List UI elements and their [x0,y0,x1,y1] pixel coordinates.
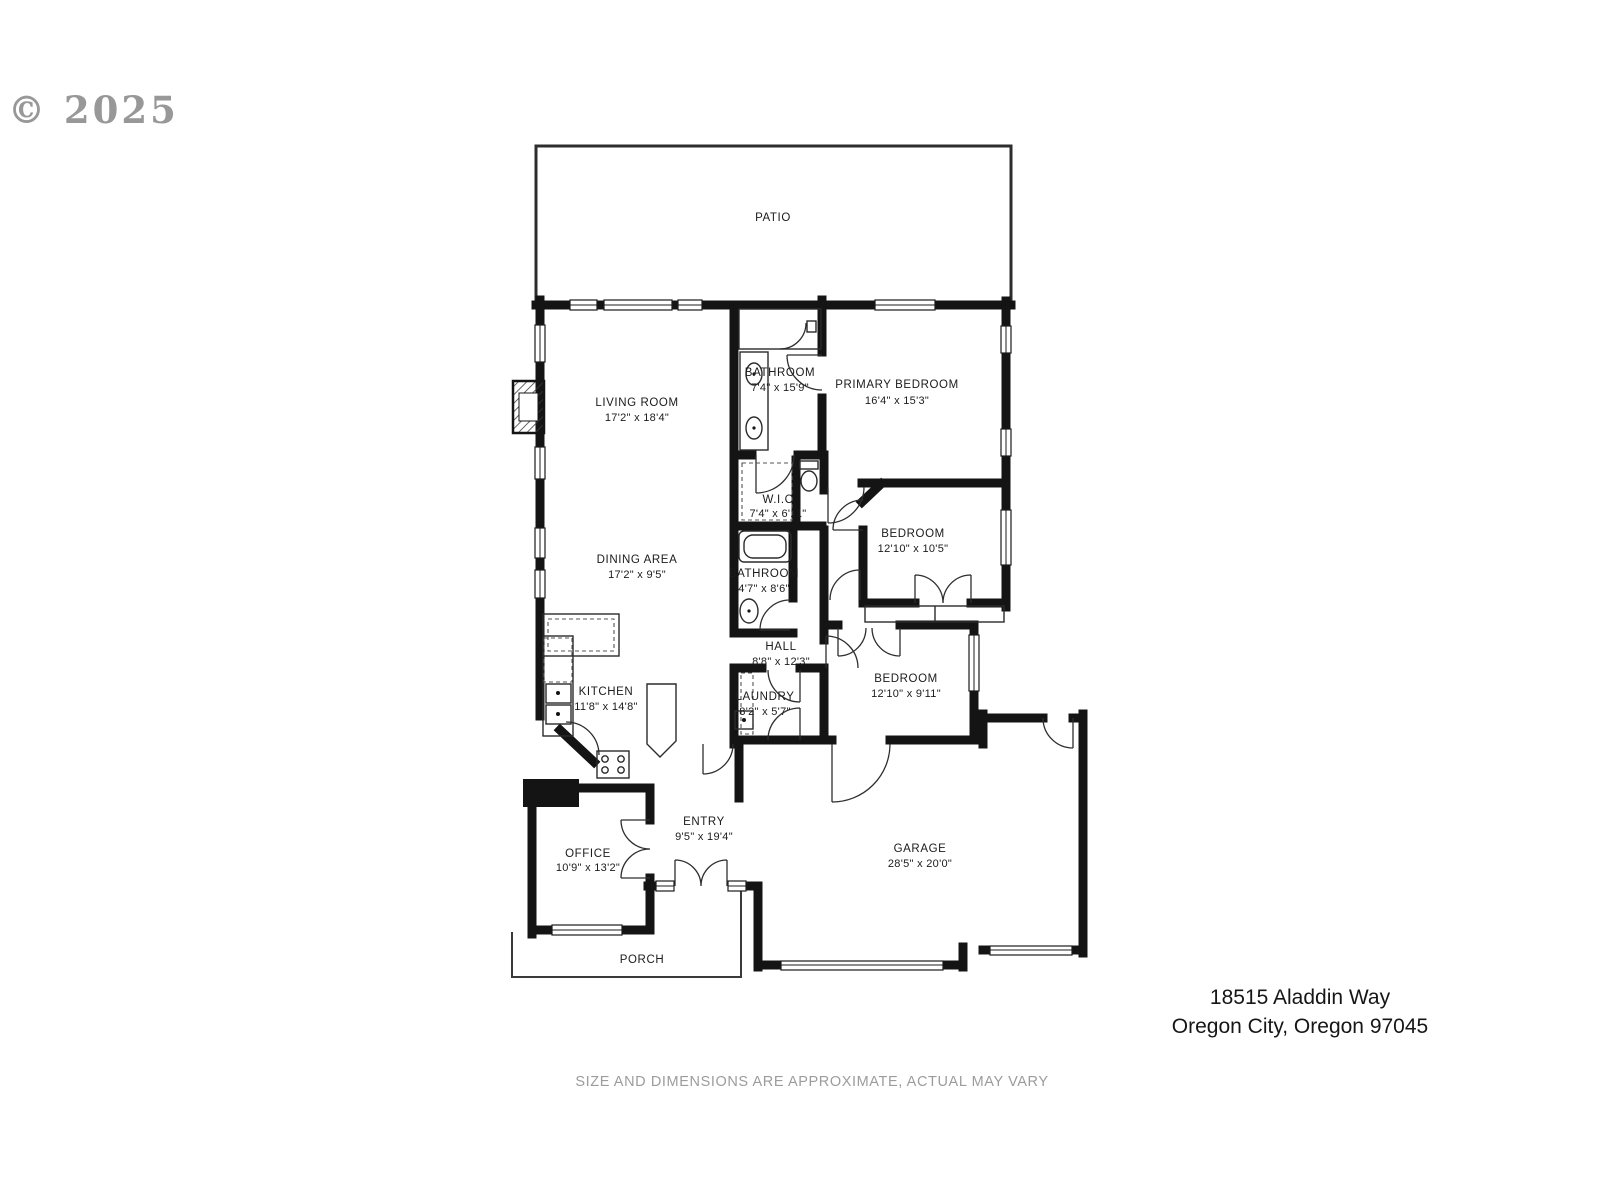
room-label-kitchen: KITCHEN 11'8" x 14'8" [574,686,637,713]
stove-icon [597,751,629,778]
bathroom-primary-dims: 7'4" x 15'9" [751,382,809,394]
shower-icon [739,309,821,349]
kitchen-dims: 11'8" x 14'8" [574,701,637,713]
garage-dims: 28'5" x 20'0" [888,858,952,870]
room-label-primary-bedroom: PRIMARY BEDROOM 16'4" x 15'3" [835,379,959,407]
island-counter [647,684,676,757]
peninsula-counter [543,614,619,656]
garage-door-right [990,946,1072,955]
room-label-bedroom-two: BEDROOM 12'10" x 9'11" [871,673,941,700]
office-name: OFFICE [565,848,611,860]
laundry-name: LAUNDRY [736,691,795,703]
bedroom-one-dims: 12'10" x 10'5" [878,543,949,555]
bathroom-primary-name: BATHROOM [745,367,815,379]
sink-icon [740,599,758,623]
fireplace-icon [513,381,544,433]
primary-bedroom-dims: 16'4" x 15'3" [865,395,929,407]
hall-name: HALL [765,641,796,653]
floorplan-page: © 2025 [0,0,1600,1200]
room-label-garage: GARAGE 28'5" x 20'0" [888,843,952,870]
bathroom-hall-dims: 4'7" x 8'6" [738,583,789,595]
toilet-icon [800,461,818,491]
room-label-bedroom-one: BEDROOM 12'10" x 10'5" [878,528,949,555]
wic-name: W.I.C [762,494,793,506]
patio-outline [536,146,1011,305]
ironing-board-icon [741,673,753,734]
living-room-dims: 17'2" x 18'4" [605,412,669,424]
wic-dims: 7'4" x 6'11" [750,508,807,520]
room-label-patio: PATIO [755,212,791,224]
garage-name: GARAGE [894,843,947,855]
entry-name: ENTRY [683,816,725,828]
bedroom-one-name: BEDROOM [881,528,945,540]
address-line1: 18515 Aladdin Way [1090,984,1510,1013]
property-address: 18515 Aladdin Way Oregon City, Oregon 97… [1090,984,1510,1042]
entry-dims: 9'5" x 19'4" [675,831,733,843]
bedroom-two-name: BEDROOM [874,673,938,685]
dining-area-dims: 17'2" x 9'5" [608,569,666,581]
living-room-name: LIVING ROOM [595,397,678,409]
windows [535,300,1011,935]
bathtub-icon [739,531,791,562]
room-label-dining-area: DINING AREA 17'2" x 9'5" [597,554,678,581]
bathroom-hall-name: BATHROOM [729,568,799,580]
disclaimer-text: SIZE AND DIMENSIONS ARE APPROXIMATE, ACT… [512,1074,1112,1090]
kitchen-name: KITCHEN [579,686,634,698]
laundry-dims: 8'2" x 5'7" [739,706,790,718]
dining-area-name: DINING AREA [597,554,678,566]
patio-name: PATIO [755,212,791,224]
bedroom-two-dims: 12'10" x 9'11" [871,688,941,700]
room-label-living-room: LIVING ROOM 17'2" x 18'4" [595,397,678,424]
porch-name: PORCH [620,954,665,966]
room-label-bathroom-primary: BATHROOM 7'4" x 15'9" [745,367,815,394]
room-label-entry: ENTRY 9'5" x 19'4" [675,816,733,843]
room-label-hall: HALL 8'8" x 12'3" [752,641,810,668]
address-line2: Oregon City, Oregon 97045 [1090,1013,1510,1042]
primary-bedroom-name: PRIMARY BEDROOM [835,379,959,391]
room-label-laundry: LAUNDRY 8'2" x 5'7" [736,691,795,718]
hall-dims: 8'8" x 12'3" [752,656,810,668]
room-label-porch: PORCH [620,954,665,966]
garage-door-left [781,961,943,970]
office-dims: 10'9" x 13'2" [556,862,620,874]
closet-shelf [865,606,1004,622]
room-label-office: OFFICE 10'9" x 13'2" [556,848,620,874]
